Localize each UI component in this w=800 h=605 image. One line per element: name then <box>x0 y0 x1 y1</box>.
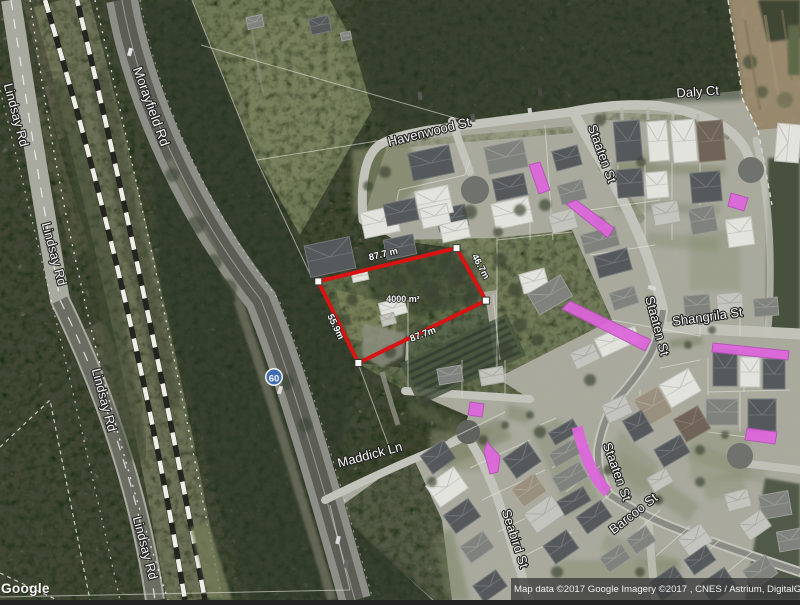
svg-text:Google: Google <box>1 581 50 596</box>
svg-text:Map data ©2017 Google Imagery: Map data ©2017 Google Imagery ©2017 , CN… <box>514 584 800 595</box>
